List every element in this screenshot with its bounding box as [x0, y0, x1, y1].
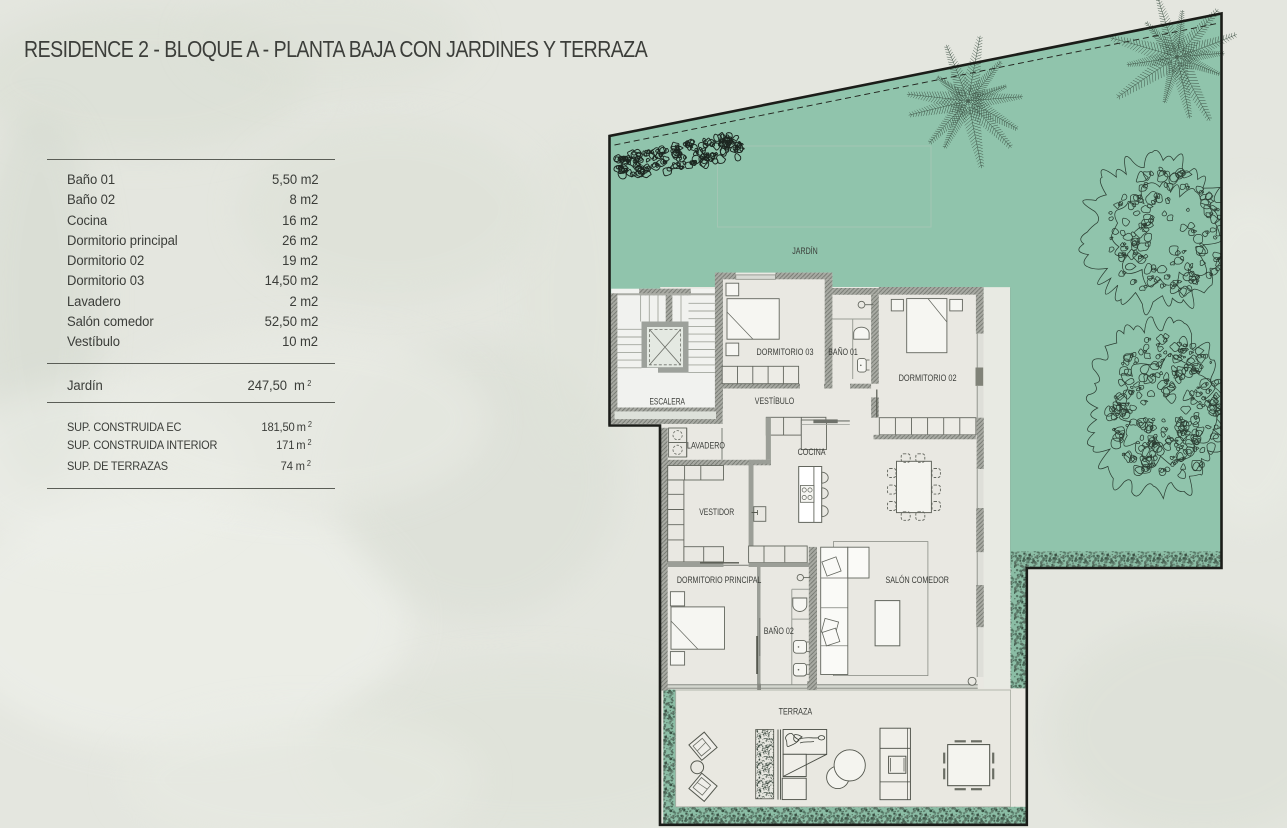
svg-text:BAÑO 01: BAÑO 01: [828, 347, 858, 357]
svg-text:COCINA: COCINA: [798, 447, 826, 457]
svg-text:TERRAZA: TERRAZA: [779, 707, 813, 717]
svg-text:JARDÍN: JARDÍN: [792, 246, 818, 256]
svg-text:DORMITORIO PRINCIPAL: DORMITORIO PRINCIPAL: [677, 575, 762, 585]
svg-text:BAÑO 02: BAÑO 02: [764, 626, 794, 636]
svg-text:DORMITORIO 02: DORMITORIO 02: [899, 373, 957, 383]
svg-text:DORMITORIO 03: DORMITORIO 03: [757, 347, 814, 357]
svg-text:VESTÍBULO: VESTÍBULO: [755, 396, 795, 406]
svg-text:LAVADERO: LAVADERO: [687, 440, 725, 450]
svg-text:VESTIDOR: VESTIDOR: [699, 507, 734, 517]
svg-text:SALÓN COMEDOR: SALÓN COMEDOR: [885, 575, 949, 585]
svg-text:ESCALERA: ESCALERA: [649, 396, 685, 406]
